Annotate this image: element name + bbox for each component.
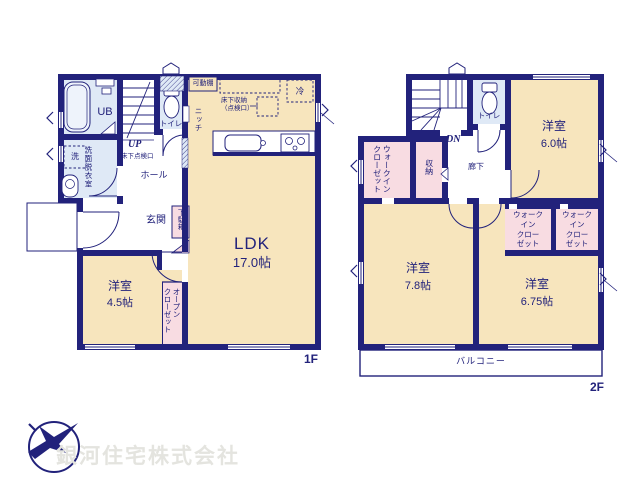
room-label-toilet2: トイレ xyxy=(474,111,504,120)
ldk-area xyxy=(188,80,315,344)
room-label-toilet1: トイレ xyxy=(156,119,186,128)
room-label-bedroom78: 洋室 xyxy=(393,261,443,275)
washer-label: 洗 xyxy=(64,152,86,162)
room-label-ub: UB xyxy=(88,106,122,119)
room-label-hallway: 廊下 xyxy=(461,162,491,172)
room-area-bedroom45: 4.5帖 xyxy=(95,297,145,310)
storage-door-mark xyxy=(441,168,448,180)
floor2-label: 2F xyxy=(576,380,604,394)
stairs-up-label: UP xyxy=(128,139,141,151)
room-area-bedroom78: 7.8帖 xyxy=(393,280,443,293)
balcony-label: バルコニー xyxy=(436,356,526,367)
company-name-watermark: 銀河住宅株式会社 xyxy=(56,440,240,470)
room-area-bedroom675: 6.75帖 xyxy=(508,296,566,309)
movable-shelf-icon xyxy=(160,76,184,91)
wic-center-label: ウォーク イン クロー ゼット xyxy=(507,210,549,249)
room-label-bedroom675: 洋室 xyxy=(510,277,564,291)
open-closet-label: オープン クローゼット xyxy=(163,288,181,342)
faucet-icon xyxy=(261,141,266,146)
room-area-bedroom60: 6.0帖 xyxy=(529,138,579,151)
wic-right-label: ウォーク イン クロー ゼット xyxy=(557,210,597,249)
niche-label: ニッチ xyxy=(194,107,203,133)
fridge-label: 冷 xyxy=(287,86,313,96)
room-area-ldk: 17.0帖 xyxy=(216,255,288,271)
room-label-washroom: 洗面脱衣室 xyxy=(84,146,93,202)
bath-counter-icon xyxy=(96,79,114,86)
room-label-hall: ホール xyxy=(134,170,174,181)
bedroom675-area xyxy=(479,204,505,344)
room-label-bedroom45: 洋室 xyxy=(95,279,145,293)
storage-label: 収納 xyxy=(424,159,434,183)
wic-left-label: ウォークイン クローゼット xyxy=(372,145,391,197)
stairs-down-label: DN xyxy=(446,134,460,146)
porch-outline xyxy=(27,203,77,251)
toilet2-icon xyxy=(482,83,497,92)
floor1-label: 1F xyxy=(288,352,318,366)
floorplan-page: UB 洗 洗面脱衣室 トイレ UP 床下点検口 可動棚 ニッチ 床下収納 （点検… xyxy=(0,0,640,480)
underfloor-hatch-label: 床下点検口 xyxy=(121,153,165,161)
movable-shelf-label: 可動棚 xyxy=(189,80,217,88)
niche-recess xyxy=(182,138,188,168)
logo-tick xyxy=(29,424,36,431)
room-label-bedroom60: 洋室 xyxy=(529,119,579,133)
room-label-entrance: 玄関 xyxy=(136,215,176,227)
stairs-down-icon xyxy=(412,80,467,130)
bathtub-icon xyxy=(64,82,90,132)
underfloor-storage-label: 床下収納 （点検口） xyxy=(221,97,261,113)
vent-mark xyxy=(163,63,179,74)
stairs-up-icon xyxy=(123,82,154,140)
vent-mark xyxy=(449,63,465,74)
shoe-cabinet-label: 下駄箱 xyxy=(176,209,184,237)
room-label-ldk: LDK xyxy=(216,234,288,254)
